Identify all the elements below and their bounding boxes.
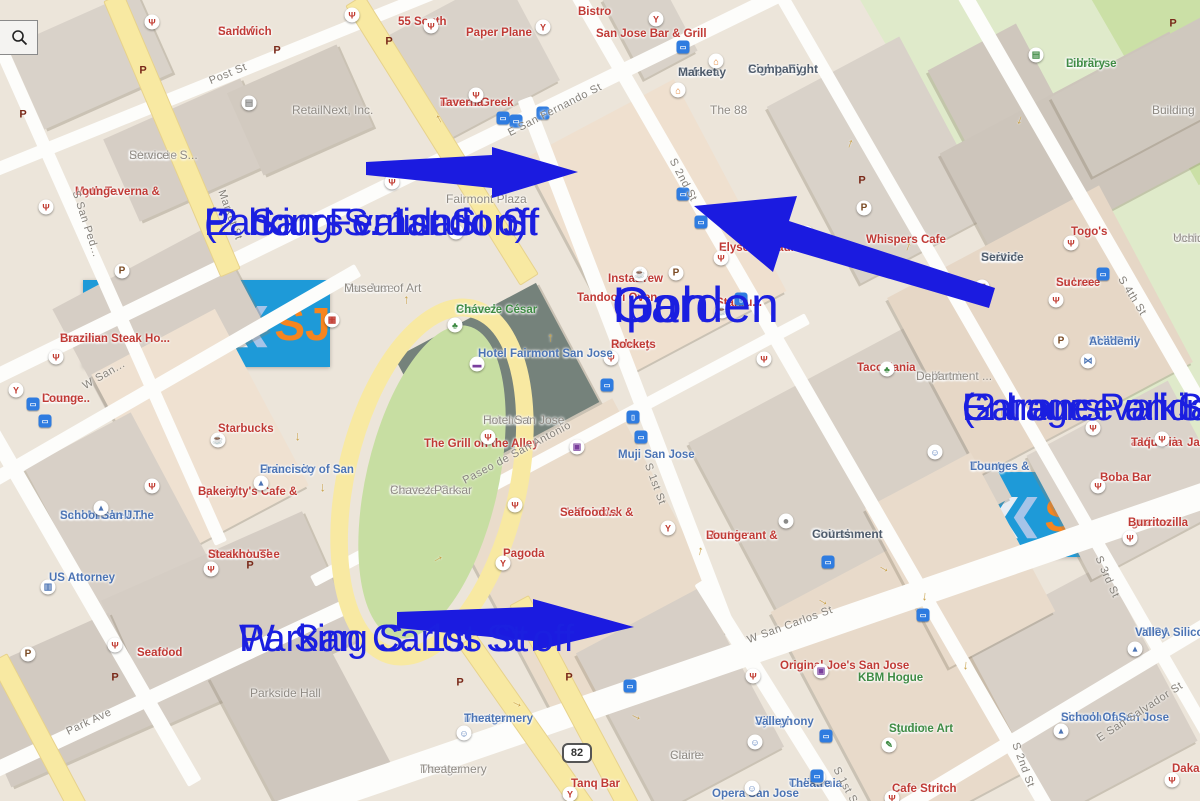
poi-line: Whispers Cafe bbox=[866, 233, 946, 247]
poi-line: Theater bbox=[420, 762, 461, 777]
restaurant-icon[interactable]: Ψ bbox=[1064, 236, 1079, 251]
theater-icon[interactable]: ☺ bbox=[745, 781, 760, 796]
restaurant-icon[interactable]: Ψ bbox=[145, 479, 160, 494]
tree-icon[interactable]: ♣ bbox=[448, 318, 463, 333]
poi-line: Steakhouse bbox=[208, 548, 273, 562]
restaurant-icon[interactable]: Ψ bbox=[885, 791, 900, 801]
house-icon[interactable]: ⌂ bbox=[671, 83, 686, 98]
restaurant-icon[interactable]: Ψ bbox=[1165, 773, 1180, 788]
poi-line: Museum of Art bbox=[344, 281, 421, 296]
tree-icon[interactable]: ♣ bbox=[880, 362, 895, 377]
poi-line: Studio bbox=[889, 722, 925, 736]
ptext-icon: P bbox=[136, 63, 151, 78]
poi-line: Department ... bbox=[916, 369, 992, 384]
poi-line: Burritozilla bbox=[1128, 516, 1188, 530]
poi-line: Jack in... bbox=[1187, 436, 1200, 450]
ptext-icon: P bbox=[1166, 16, 1181, 31]
bag-icon[interactable]: ▣ bbox=[570, 440, 585, 455]
search-box[interactable] bbox=[0, 20, 38, 55]
poi-line: Muji San Jose bbox=[618, 448, 695, 462]
theater-icon[interactable]: ☺ bbox=[748, 735, 763, 750]
poi-line: San Jose Bar & Grill bbox=[596, 27, 707, 41]
dumbbell-icon[interactable]: ⋈ bbox=[1081, 354, 1096, 369]
poi-line: Paper Plane bbox=[466, 26, 532, 40]
school-icon[interactable]: ▴ bbox=[1128, 642, 1143, 657]
poi-line: Lounge bbox=[706, 529, 748, 543]
one-way-arrow-icon: → bbox=[960, 659, 976, 673]
restaurant-icon[interactable]: Ψ bbox=[49, 350, 64, 365]
poi-line: Seafood ... bbox=[560, 506, 618, 520]
cocktail-icon[interactable]: Y bbox=[496, 556, 511, 571]
school-icon[interactable]: ▴ bbox=[94, 501, 109, 516]
pin-icon[interactable]: ● bbox=[779, 514, 794, 529]
company-icon[interactable]: ▤ bbox=[242, 96, 257, 111]
poi-line: Rockets bbox=[611, 338, 656, 352]
restaurant-icon[interactable]: Ψ bbox=[799, 226, 814, 241]
poi-line: Chávez bbox=[456, 303, 496, 317]
restaurant-icon[interactable]: Ψ bbox=[1155, 432, 1170, 447]
ptext-icon: P bbox=[382, 34, 397, 49]
poi-line: KBM Hogue bbox=[858, 671, 923, 685]
poi-line: Parkside Hall bbox=[250, 686, 321, 701]
restaurant-icon[interactable]: Ψ bbox=[481, 430, 496, 445]
poi-line: Francisco bbox=[260, 463, 314, 477]
transit-icon[interactable]: ▭ bbox=[601, 379, 614, 392]
poi-line: Bakery bbox=[198, 485, 236, 499]
poi-line: Company bbox=[748, 62, 803, 77]
school-icon[interactable]: ▴ bbox=[254, 476, 269, 491]
restaurant-icon[interactable]: Ψ bbox=[469, 88, 484, 103]
restaurant-icon[interactable]: Ψ bbox=[145, 15, 160, 30]
poi-line: Sandwich bbox=[218, 25, 272, 39]
poi-line: Building bbox=[1152, 103, 1195, 118]
cocktail-icon[interactable]: Y bbox=[661, 521, 676, 536]
restaurant-icon[interactable]: Ψ bbox=[39, 200, 54, 215]
search-icon bbox=[11, 29, 28, 46]
poi-line: Service - S... bbox=[129, 148, 198, 163]
poi-line: Brazilian Steak Ho... bbox=[60, 332, 170, 346]
theater-icon[interactable]: ☺ bbox=[928, 445, 943, 460]
poi-line: Courts bbox=[812, 527, 851, 542]
transit-icon[interactable]: ▭ bbox=[635, 431, 648, 444]
library-icon[interactable]: ▤ bbox=[1029, 48, 1044, 63]
restaurant-icon[interactable]: Ψ bbox=[108, 638, 123, 653]
bag-icon[interactable]: ▣ bbox=[814, 664, 829, 679]
gov-icon[interactable]: ▥ bbox=[41, 580, 56, 595]
restaurant-icon[interactable]: Ψ bbox=[757, 352, 772, 367]
ptext-icon: P bbox=[270, 43, 285, 58]
poi-line: Hotel San Jose bbox=[483, 413, 564, 428]
restaurant-icon[interactable]: Ψ bbox=[424, 19, 439, 34]
poi-line: Lounge bbox=[42, 392, 84, 406]
poi-line: Elyse Restaura... bbox=[719, 241, 811, 255]
poi-line: Valley bbox=[755, 715, 788, 729]
pcircle-icon[interactable]: P bbox=[1054, 334, 1069, 349]
school-icon[interactable]: ▴ bbox=[1054, 724, 1069, 739]
restaurant-icon[interactable]: Ψ bbox=[508, 498, 523, 513]
poi-line: Starbucks bbox=[218, 422, 274, 436]
ptext-icon: P bbox=[108, 670, 123, 685]
annotation-line: (2 hours validation) bbox=[962, 383, 1200, 433]
transit-icon[interactable]: ▭ bbox=[811, 770, 824, 783]
one-way-arrow-icon: → bbox=[318, 482, 333, 495]
logo-chevron-icon: ❮ bbox=[1009, 492, 1043, 538]
ptext-icon: P bbox=[855, 173, 870, 188]
annotation-line: Garden bbox=[612, 275, 779, 335]
restaurant-icon[interactable]: Ψ bbox=[204, 562, 219, 577]
poi-line: Cafe Stritch bbox=[892, 782, 957, 796]
restaurant-icon[interactable]: Ψ bbox=[746, 669, 761, 684]
restaurant-icon[interactable]: Ψ bbox=[345, 8, 360, 23]
restaurant-icon[interactable]: Ψ bbox=[385, 175, 400, 190]
poi-line: Sucree bbox=[1056, 276, 1094, 290]
cocktail-icon[interactable]: Y bbox=[536, 20, 551, 35]
transit-icon[interactable]: ▭ bbox=[820, 730, 833, 743]
transit-icon[interactable]: ▭ bbox=[27, 398, 40, 411]
annotation-line: W. San Carlos St bbox=[239, 615, 528, 664]
poi-line: Hotel Fairmont San Jose bbox=[478, 347, 613, 361]
poi-line: Service bbox=[981, 250, 1024, 265]
cocktail-icon[interactable]: Y bbox=[649, 12, 664, 27]
cocktail-icon[interactable]: Y bbox=[563, 787, 578, 801]
restaurant-icon[interactable]: Ψ bbox=[1123, 531, 1138, 546]
transit-icon[interactable]: ▭ bbox=[677, 41, 690, 54]
one-way-arrow-icon: → bbox=[293, 431, 308, 444]
poi-line: Uchida Hall bbox=[1173, 231, 1200, 246]
ptext-icon: P bbox=[16, 107, 31, 122]
transit-icon[interactable]: ▭ bbox=[624, 680, 637, 693]
poi-line: 55 South bbox=[398, 15, 447, 29]
transit-icon[interactable]: ▭ bbox=[822, 556, 835, 569]
train-icon[interactable]: ▯ bbox=[627, 411, 640, 424]
transit-icon[interactable]: ▭ bbox=[1097, 268, 1110, 281]
pcircle-icon[interactable]: P bbox=[21, 647, 36, 662]
art-icon[interactable]: ✎ bbox=[882, 738, 897, 753]
poi-line: US Attorney bbox=[49, 571, 115, 585]
pcircle-icon[interactable]: P bbox=[857, 201, 872, 216]
one-way-arrow-icon: → bbox=[689, 543, 706, 558]
poi-line: Academy bbox=[1089, 335, 1140, 349]
poi-line: Chavez Park bbox=[390, 483, 459, 498]
restaurant-icon[interactable]: Ψ bbox=[1091, 479, 1106, 494]
annotation-line: (2 hours validation) bbox=[204, 198, 527, 248]
poi-line: Claire bbox=[670, 748, 701, 763]
poi-line: Lounge bbox=[970, 460, 1012, 474]
house-icon[interactable]: ⌂ bbox=[709, 54, 724, 69]
restaurant-icon[interactable]: Ψ bbox=[1049, 293, 1064, 308]
restaurant-icon[interactable]: Ψ bbox=[714, 251, 729, 266]
poi-line: The 88 bbox=[710, 103, 747, 118]
poi-line: Boba Bar bbox=[1100, 471, 1151, 485]
post-icon[interactable]: ✉ bbox=[975, 280, 990, 295]
theater-icon[interactable]: ☺ bbox=[457, 726, 472, 741]
ptext-icon: P bbox=[562, 670, 577, 685]
poi-line: Valley bbox=[1135, 626, 1168, 640]
poi-line: RetailNext, Inc. bbox=[292, 103, 373, 118]
pcircle-icon[interactable]: P bbox=[115, 264, 130, 279]
transit-icon[interactable]: ▭ bbox=[497, 112, 510, 125]
map-canvas: PARK ❮ ❮ SJ PARK ❮ ❮ SJ →→→→→→→→→→→→→→→→… bbox=[0, 0, 1200, 801]
poi-line: Tanq Bar bbox=[571, 777, 620, 791]
one-way-arrow-icon: → bbox=[541, 332, 556, 345]
poi-line: Seafood bbox=[137, 646, 182, 660]
transit-icon[interactable]: ▭ bbox=[917, 609, 930, 622]
poi-line: Theater bbox=[464, 712, 506, 726]
hotel-icon[interactable]: ▬ bbox=[470, 357, 485, 372]
coffee-icon[interactable]: ☕ bbox=[211, 433, 226, 448]
ptext-icon: P bbox=[243, 558, 258, 573]
poi-line: Bistro bbox=[578, 5, 611, 19]
route-shield-82: 82 bbox=[562, 743, 592, 763]
transit-icon[interactable]: ▭ bbox=[695, 216, 708, 229]
ptext-icon: P bbox=[453, 675, 468, 690]
museum-icon[interactable]: ▦ bbox=[325, 313, 340, 328]
one-way-arrow-icon: → bbox=[919, 590, 935, 604]
poi-line: Library bbox=[1066, 57, 1105, 71]
cocktail-icon[interactable]: Y bbox=[9, 383, 24, 398]
poi-line: Mezcal bbox=[389, 160, 427, 174]
transit-icon[interactable]: ▭ bbox=[39, 415, 52, 428]
